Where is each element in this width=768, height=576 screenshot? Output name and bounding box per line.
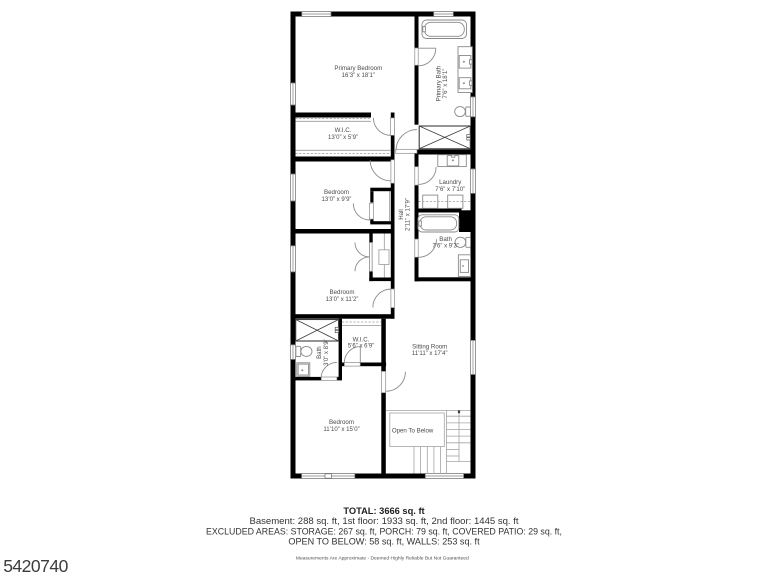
svg-text:Bath: Bath <box>316 346 323 359</box>
svg-text:EXCLUDED AREAS: STORAGE: 267 s: EXCLUDED AREAS: STORAGE: 267 sq. ft, POR… <box>206 527 562 537</box>
svg-text:5’6” x 6’9”: 5’6” x 6’9” <box>348 344 375 350</box>
svg-text:Sitting Room: Sitting Room <box>412 343 447 350</box>
svg-text:Hall: Hall <box>398 209 405 220</box>
svg-text:7’6” x 7’10”: 7’6” x 7’10” <box>435 187 465 193</box>
svg-text:Primary Bath: Primary Bath <box>435 65 442 101</box>
svg-text:3’0” x 8’9”: 3’0” x 8’9” <box>324 339 330 366</box>
svg-text:2’11” x 17’9”: 2’11” x 17’9” <box>406 198 412 231</box>
svg-text:Primary Bedroom: Primary Bedroom <box>334 65 382 72</box>
svg-text:11’10” x 15’0”: 11’10” x 15’0” <box>323 427 359 433</box>
svg-text:11’11” x 17’4”: 11’11” x 17’4” <box>412 351 448 357</box>
svg-text:Bedroom: Bedroom <box>329 419 354 426</box>
svg-text:13’0” x 9’9”: 13’0” x 9’9” <box>322 197 352 203</box>
svg-text:W.I.C.: W.I.C. <box>353 337 370 344</box>
svg-text:Bedroom: Bedroom <box>330 289 355 296</box>
svg-text:5420740: 5420740 <box>3 556 68 576</box>
svg-text:OPEN TO BELOW: 58 sq. ft, WALL: OPEN TO BELOW: 58 sq. ft, WALLS: 253 sq.… <box>288 537 480 547</box>
svg-text:7’6” x 9’3”: 7’6” x 9’3” <box>432 244 459 250</box>
svg-text:TOTAL: 3666 sq. ft: TOTAL: 3666 sq. ft <box>343 506 424 516</box>
svg-text:Measurements Are Approximate -: Measurements Are Approximate - Deemed Hi… <box>296 556 469 562</box>
svg-text:7’6” x 18’1”: 7’6” x 18’1” <box>443 69 449 99</box>
svg-text:Basement: 288 sq. ft, 1st floo: Basement: 288 sq. ft, 1st floor: 1933 sq… <box>249 516 518 527</box>
svg-text:Open To Below: Open To Below <box>392 428 434 435</box>
svg-text:Bedroom: Bedroom <box>324 189 349 196</box>
svg-text:16’3” x 18’1”: 16’3” x 18’1” <box>342 73 375 79</box>
svg-text:13’0” x 11’2”: 13’0” x 11’2” <box>326 297 359 303</box>
svg-text:Bath: Bath <box>439 236 452 243</box>
svg-text:W.I.C.: W.I.C. <box>335 127 352 134</box>
svg-text:Laundry: Laundry <box>439 179 462 186</box>
svg-text:13’0” x 5’9”: 13’0” x 5’9” <box>328 135 358 141</box>
